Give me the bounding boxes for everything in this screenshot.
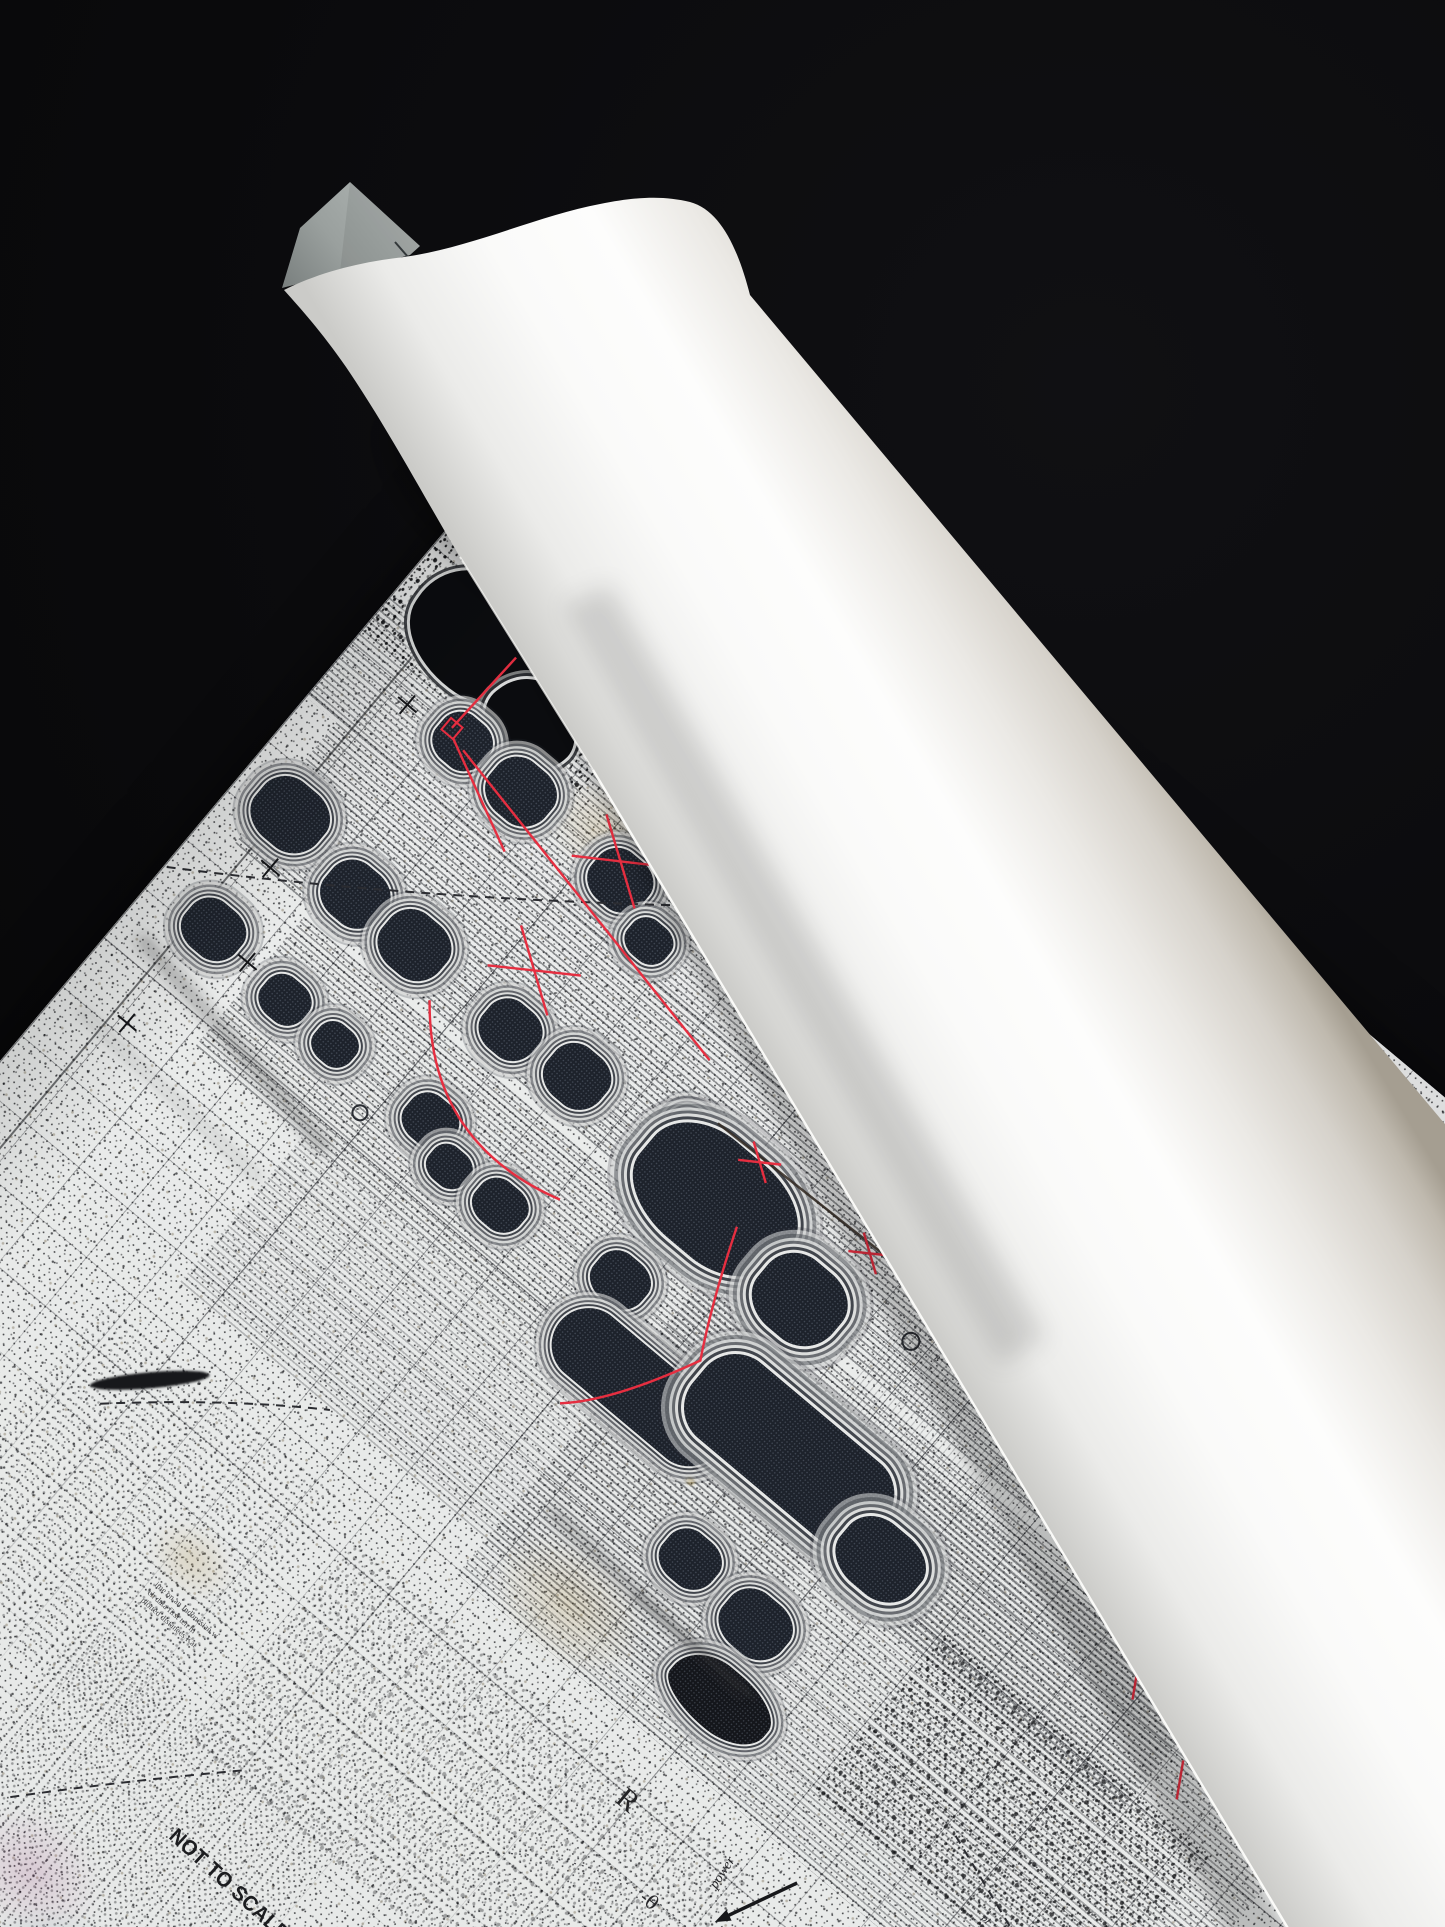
diagram-arrow-head [715,1909,735,1927]
micro-label: pl [979,1913,992,1926]
micro-label: 8 [932,1353,942,1364]
dashed-route-line [931,1836,1040,1927]
ink-blob-layer [579,371,1445,1496]
circle-mark [348,1101,372,1125]
ink-blob [463,1169,537,1242]
red-annotation-line [848,1233,891,1275]
mark-layer: 368pl2ZONA [579,371,1445,1496]
red-annotation-line [1161,1760,1198,1799]
ink-smudge [89,1367,210,1393]
ink-blob [649,1519,731,1600]
angle-label: -θ [635,1887,663,1915]
registration-cross [390,688,424,722]
ink-blob [238,764,341,866]
texture-layer [579,371,1445,1496]
ink-blob [304,1014,366,1076]
ink-spatter [188,1541,753,1927]
registration-cross [254,851,288,885]
paper-stain [681,1471,699,1489]
poster-mockup-scene: 368pl2ZONA ime on an Indonesian wch data… [0,0,1445,1927]
halftone-dots [0,1621,345,1927]
ink-blob [707,1577,804,1672]
red-annotation-line [848,1233,891,1275]
sheet-corner-shade [340,182,420,272]
zone-label: ZONA [1127,1641,1158,1685]
ink-blob [577,838,663,924]
arrow-note-label: power [707,1854,739,1892]
dashed-route-line [100,1294,330,1519]
radius-label: R [609,1781,646,1820]
paper-stain [0,1867,196,1927]
dashed-route-line [767,872,858,960]
sheet-corner-behind-roll [282,182,420,288]
ink-blob [532,1033,621,1121]
corner-seam-line [395,242,408,257]
drawing-sheet: 368pl2ZONA ime on an Indonesian wch data… [0,371,1445,1927]
circle-mark [898,1328,925,1355]
map-caption: ime on an Indonesian wch data first ten … [139,1579,221,1656]
dotted-arc [471,1790,712,1927]
not-to-scale-label: NOT TO SCALE [164,1824,294,1927]
micro-label: 36 [956,1355,969,1368]
paper-stain [466,1507,670,1704]
hatch-band-layer [579,371,1445,1496]
red-annotation-line [1089,1590,1120,1620]
red-annotation-line [412,750,760,1060]
halftone-dots [0,1300,344,1752]
ink-blob [617,910,681,973]
zone-number-label: 2 [1144,1631,1156,1640]
ink-blob [469,989,552,1072]
paper-stain [0,1778,127,1927]
ink-blob [250,966,319,1035]
